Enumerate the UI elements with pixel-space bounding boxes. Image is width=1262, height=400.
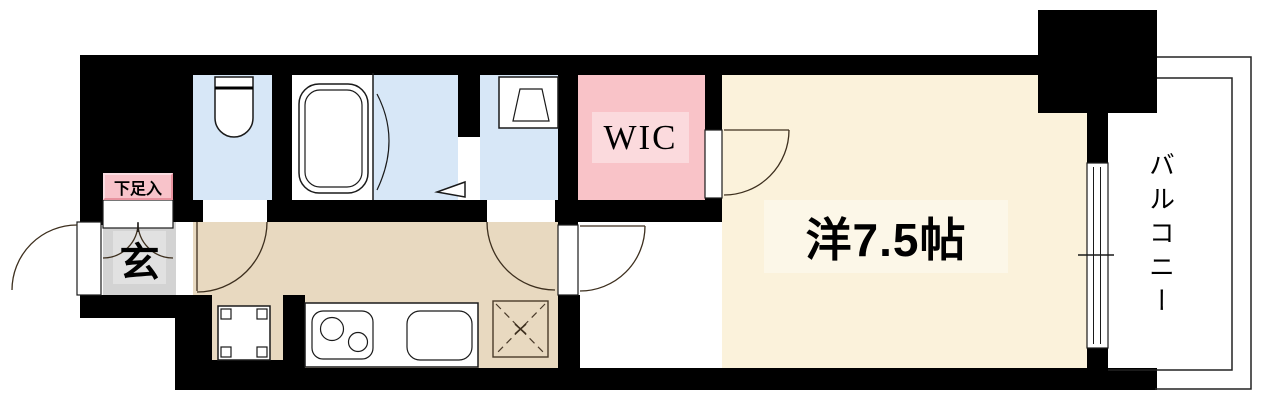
main-room-label: 洋7.5帖 <box>764 200 1008 273</box>
wall-bottom-left-block <box>175 295 212 390</box>
wall-hall-room-lower <box>558 295 580 368</box>
wall-under-washer <box>212 360 283 390</box>
main-room-door-swing-icon <box>580 226 645 291</box>
wall-left <box>80 173 103 225</box>
wall-wet-rooms-bottom <box>193 200 722 222</box>
opening-washroom-door <box>487 200 555 222</box>
wall-toilet-bath <box>272 73 292 200</box>
bathtub-icon <box>299 84 368 193</box>
wall-kitchen-left <box>283 295 305 390</box>
wall-wic-right-upper <box>705 55 722 130</box>
opening-toilet-door <box>203 200 267 222</box>
floor-bathroom <box>373 73 458 200</box>
wall-right-upper <box>1087 113 1108 166</box>
wic-label: WIC <box>592 112 689 163</box>
wall-wic-right-lower <box>705 196 722 222</box>
opening-wic-door <box>705 130 722 198</box>
main-room-door-leaf <box>558 225 578 295</box>
entrance-door-leaf <box>77 222 101 295</box>
floorplan: 下足入 玄 WIC 洋7.5帖 バルコニー <box>0 0 1262 400</box>
balcony-label: バルコニー <box>1140 118 1182 353</box>
wall-entrance-bottom <box>80 295 175 318</box>
wall-bottom <box>175 368 1157 390</box>
kitchen-counter <box>305 303 478 367</box>
washer-space-icon <box>218 306 270 360</box>
opening-entrance-step <box>176 222 193 295</box>
wall-top-left-block <box>80 55 193 173</box>
shoe-storage-label: 下足入 <box>103 173 173 200</box>
wall-entrance-toilet <box>173 173 193 222</box>
wall-washroom-wic <box>558 55 578 225</box>
wall-bath-washroom <box>458 73 480 137</box>
entrance-door-swing-icon <box>12 225 77 290</box>
wall-pillar <box>1038 10 1157 113</box>
entrance-label: 玄 <box>103 224 176 294</box>
toilet-icon <box>215 77 253 137</box>
floorplan-drawing <box>0 0 1262 400</box>
